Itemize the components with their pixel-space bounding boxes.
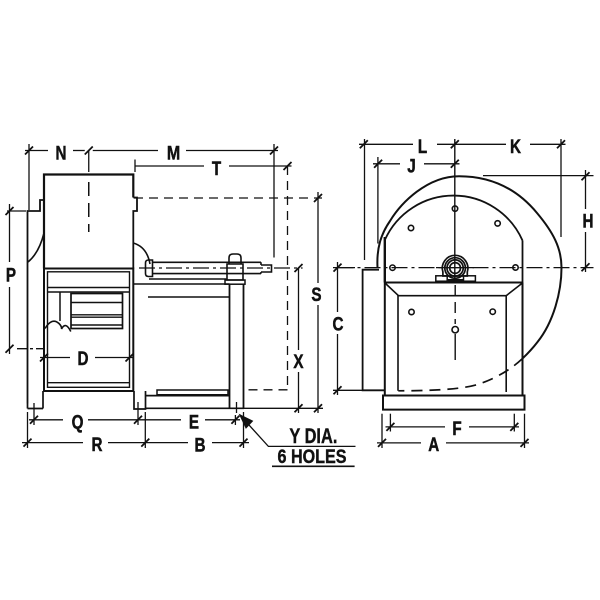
svg-text:R: R bbox=[92, 433, 103, 455]
svg-text:H: H bbox=[583, 210, 594, 232]
svg-text:6 HOLES: 6 HOLES bbox=[278, 446, 347, 468]
svg-text:N: N bbox=[56, 141, 67, 163]
svg-text:M: M bbox=[167, 142, 180, 164]
svg-text:L: L bbox=[418, 135, 428, 157]
svg-text:P: P bbox=[6, 264, 16, 286]
svg-text:A: A bbox=[428, 433, 439, 455]
svg-text:F: F bbox=[452, 417, 462, 439]
svg-text:K: K bbox=[510, 135, 521, 157]
svg-text:T: T bbox=[212, 157, 222, 179]
svg-text:B: B bbox=[195, 433, 206, 455]
svg-text:X: X bbox=[293, 350, 303, 372]
svg-text:Y DIA.: Y DIA. bbox=[289, 424, 337, 448]
svg-text:Q: Q bbox=[72, 411, 84, 433]
svg-text:J: J bbox=[407, 155, 415, 177]
svg-text:C: C bbox=[333, 313, 344, 335]
svg-text:D: D bbox=[78, 347, 89, 369]
svg-text:S: S bbox=[311, 283, 321, 305]
svg-text:E: E bbox=[189, 411, 199, 433]
